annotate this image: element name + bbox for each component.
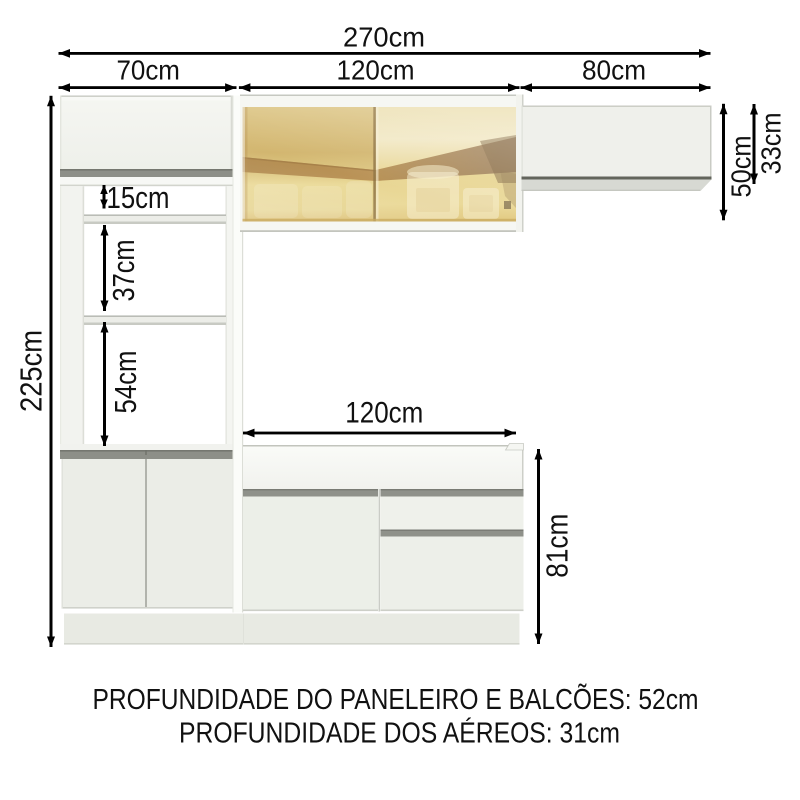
svg-text:54cm: 54cm [108, 351, 143, 414]
svg-text:81cm: 81cm [540, 514, 575, 578]
svg-text:PROFUNDIDADE DO PANELEIRO E BA: PROFUNDIDADE DO PANELEIRO E BALCÕES: 52c… [93, 682, 699, 716]
svg-text:270cm: 270cm [343, 21, 425, 52]
svg-text:120cm: 120cm [337, 55, 415, 86]
svg-text:37cm: 37cm [106, 240, 141, 302]
svg-text:120cm: 120cm [345, 396, 423, 429]
svg-text:PROFUNDIDADE DOS AÉREOS: 31cm: PROFUNDIDADE DOS AÉREOS: 31cm [179, 717, 620, 750]
svg-text:80cm: 80cm [582, 55, 646, 86]
svg-text:33cm: 33cm [755, 113, 786, 175]
svg-text:70cm: 70cm [116, 55, 180, 86]
svg-text:225cm: 225cm [14, 330, 49, 412]
svg-text:50cm: 50cm [726, 136, 757, 198]
svg-text:15cm: 15cm [107, 180, 170, 215]
